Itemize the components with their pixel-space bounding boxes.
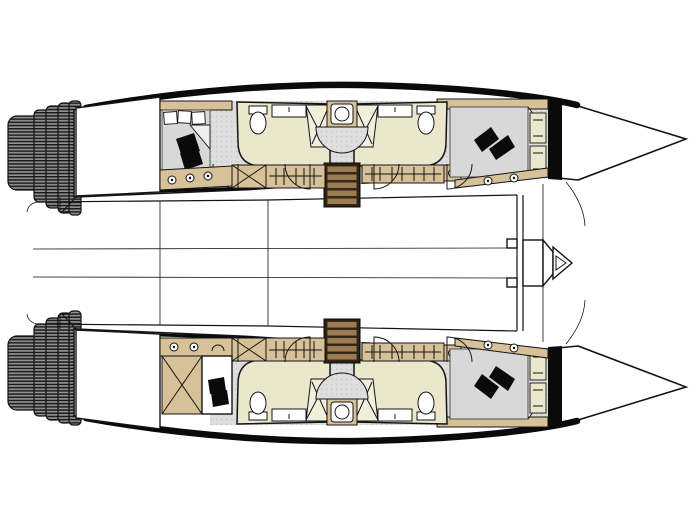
starboard-aft-cabin xyxy=(160,338,232,414)
pillows xyxy=(164,111,206,125)
porthole-strip xyxy=(160,166,232,190)
bowsprit-fitting xyxy=(523,240,572,286)
catamaran-deck-plan xyxy=(0,0,700,525)
port-hull-interior xyxy=(210,99,548,207)
porthole-strip xyxy=(160,338,232,356)
bridgedeck xyxy=(27,184,572,342)
storage-x-cabinet xyxy=(162,356,202,414)
headboard-shelf xyxy=(160,101,232,110)
floorplan-canvas xyxy=(0,0,700,525)
desk-chair xyxy=(211,390,229,407)
starboard-hull-interior xyxy=(210,319,548,427)
